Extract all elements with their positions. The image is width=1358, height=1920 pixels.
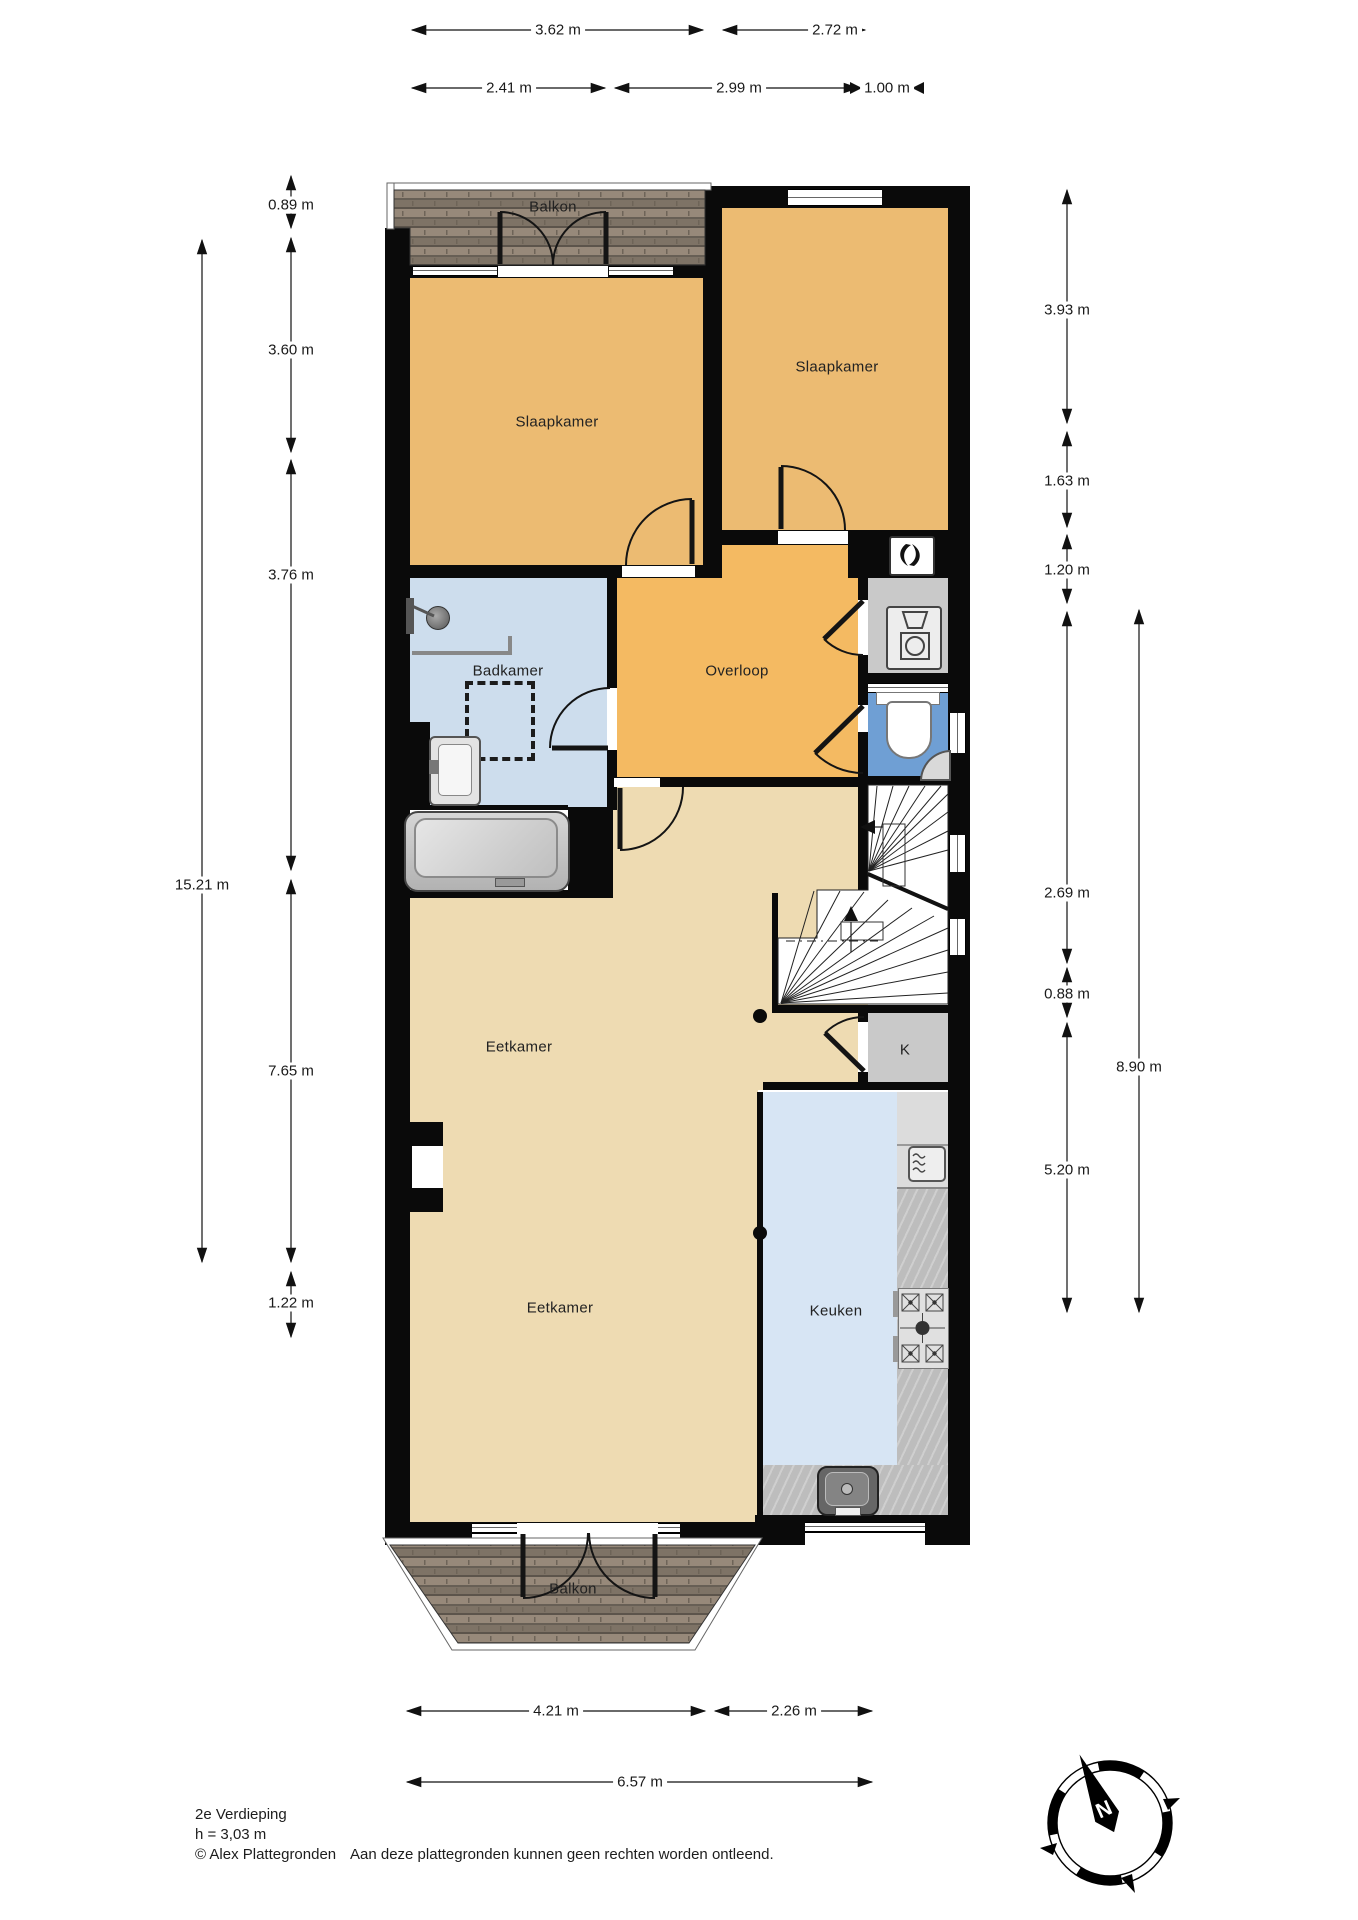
chimney-niche xyxy=(412,1146,443,1188)
dim-top-2: 2.72 m xyxy=(808,22,862,39)
floor-title: 2e Verdieping xyxy=(195,1806,287,1823)
balcony-top xyxy=(387,183,711,265)
label-keuken: Keuken xyxy=(810,1303,863,1320)
wall-pier xyxy=(400,722,430,805)
compass-rose: N xyxy=(1040,1749,1180,1893)
dim-bottom-1: 4.21 m xyxy=(529,1703,583,1720)
dim-right-7: 5.20 m xyxy=(1040,1162,1094,1179)
label-eetkamer-upper: Eetkamer xyxy=(486,1039,553,1056)
wall-segment xyxy=(763,1082,948,1090)
copyright-notice: © Alex Plattegronden xyxy=(195,1846,336,1863)
stove-handle xyxy=(893,1291,898,1317)
towel-rail-end xyxy=(508,636,512,655)
dim-left-4: 15.21 m xyxy=(171,877,233,894)
wash-basin-bowl xyxy=(438,744,472,796)
shower-plate xyxy=(406,598,414,634)
column-dot xyxy=(753,1009,767,1023)
dim-left-3: 3.76 m xyxy=(264,567,318,584)
stove-panel xyxy=(898,1288,949,1369)
dim-left-6: 1.22 m xyxy=(264,1295,318,1312)
sink-drain xyxy=(841,1483,853,1495)
shower-head-icon xyxy=(426,606,450,630)
label-badkamer: Badkamer xyxy=(473,663,544,680)
wall-segment xyxy=(703,186,722,578)
door-opening xyxy=(498,266,608,277)
dim-left-5: 7.65 m xyxy=(264,1063,318,1080)
label-eetkamer-lower: Eetkamer xyxy=(527,1300,594,1317)
label-balkon-bottom: Balkon xyxy=(549,1581,597,1598)
window xyxy=(472,1523,517,1534)
dim-right-3: 1.20 m xyxy=(1040,562,1094,579)
door-opening xyxy=(607,688,617,750)
dim-top-1: 3.62 m xyxy=(531,22,585,39)
dim-bottom-3: 6.57 m xyxy=(613,1774,667,1791)
wall-segment xyxy=(568,807,613,898)
window xyxy=(949,713,966,753)
cabinet-seam xyxy=(897,1144,948,1146)
dim-right-1: 3.93 m xyxy=(1040,302,1094,319)
compass-north-label: N xyxy=(1092,1796,1115,1823)
dim-right-5: 0.88 m xyxy=(1040,986,1094,1003)
wall-segment xyxy=(868,673,948,683)
stove-handle xyxy=(893,1336,898,1362)
mv-unit xyxy=(889,536,935,576)
room-keuken xyxy=(763,1092,897,1465)
label-overloop: Overloop xyxy=(705,663,768,680)
window xyxy=(949,919,966,955)
ceiling-height: h = 3,03 m xyxy=(195,1826,266,1843)
window xyxy=(609,266,673,276)
dim-right-4: 2.69 m xyxy=(1040,885,1094,902)
door-opening xyxy=(858,1022,868,1072)
towel-rail xyxy=(412,651,512,655)
label-slaapkamer-left: Slaapkamer xyxy=(515,414,598,431)
washing-machine xyxy=(886,606,942,670)
floorplan-page: N Balkon Slaapkamer Slaapkamer Badkamer … xyxy=(0,0,1358,1920)
dim-left-2: 3.60 m xyxy=(264,342,318,359)
wall-segment xyxy=(772,893,778,1012)
basin-tap xyxy=(429,760,439,774)
oven-icon-box xyxy=(908,1146,946,1182)
label-balkon-top: Balkon xyxy=(529,199,577,216)
door-opening xyxy=(858,600,868,655)
door-opening xyxy=(858,705,868,732)
window xyxy=(413,266,497,276)
window xyxy=(658,1523,680,1534)
window xyxy=(949,835,966,872)
dim-right-6: 8.90 m xyxy=(1112,1059,1166,1076)
wall-segment xyxy=(400,805,568,810)
column-dot xyxy=(753,1226,767,1240)
dim-top-4: 2.99 m xyxy=(712,80,766,97)
label-kast-k: K xyxy=(900,1042,910,1059)
dim-right-2: 1.63 m xyxy=(1040,473,1094,490)
door-opening xyxy=(614,778,660,787)
toilet-bowl xyxy=(886,701,932,759)
dim-top-3: 2.41 m xyxy=(482,80,536,97)
door-opening xyxy=(622,566,695,577)
dim-top-5: 1.00 m xyxy=(860,80,914,97)
dim-left-1: 0.89 m xyxy=(264,197,318,214)
window xyxy=(805,1522,925,1533)
door-opening xyxy=(778,531,848,544)
label-slaapkamer-right: Slaapkamer xyxy=(795,359,878,376)
cabinet-seam xyxy=(897,1187,948,1189)
sink-faucet xyxy=(835,1507,861,1516)
window xyxy=(788,189,882,206)
dim-bottom-2: 2.26 m xyxy=(767,1703,821,1720)
bath-faucet xyxy=(495,878,525,887)
bath-tub-inner xyxy=(414,818,558,878)
disclaimer-text: Aan deze plattegronden kunnen geen recht… xyxy=(350,1846,774,1863)
wall-segment xyxy=(757,1092,763,1522)
